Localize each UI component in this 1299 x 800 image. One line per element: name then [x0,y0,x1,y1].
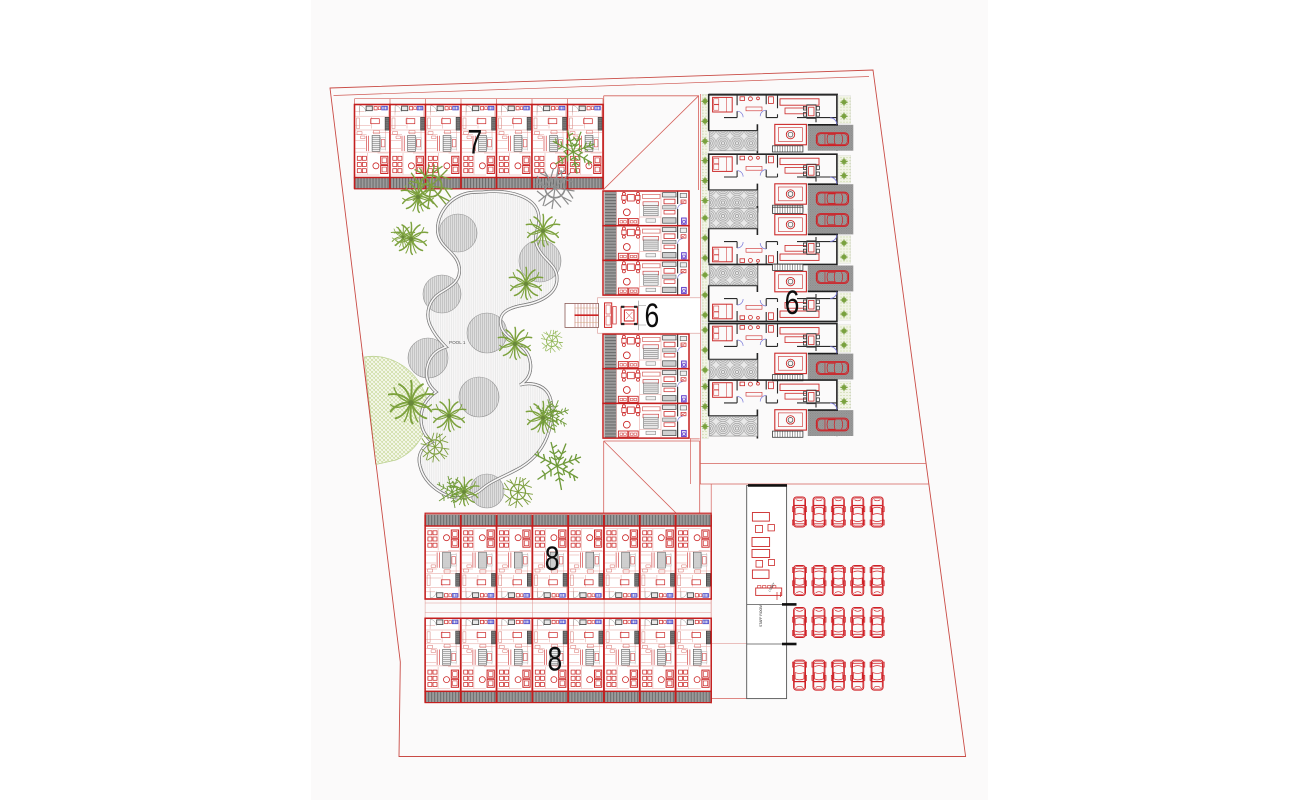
svg-text:7: 7 [468,124,483,162]
svg-text:POOL 1: POOL 1 [449,340,466,345]
svg-text:8: 8 [545,540,560,578]
svg-text:6: 6 [645,297,660,335]
svg-text:STAFF ROOM: STAFF ROOM [759,605,763,627]
svg-text:6: 6 [785,284,800,322]
svg-text:8: 8 [548,640,563,678]
